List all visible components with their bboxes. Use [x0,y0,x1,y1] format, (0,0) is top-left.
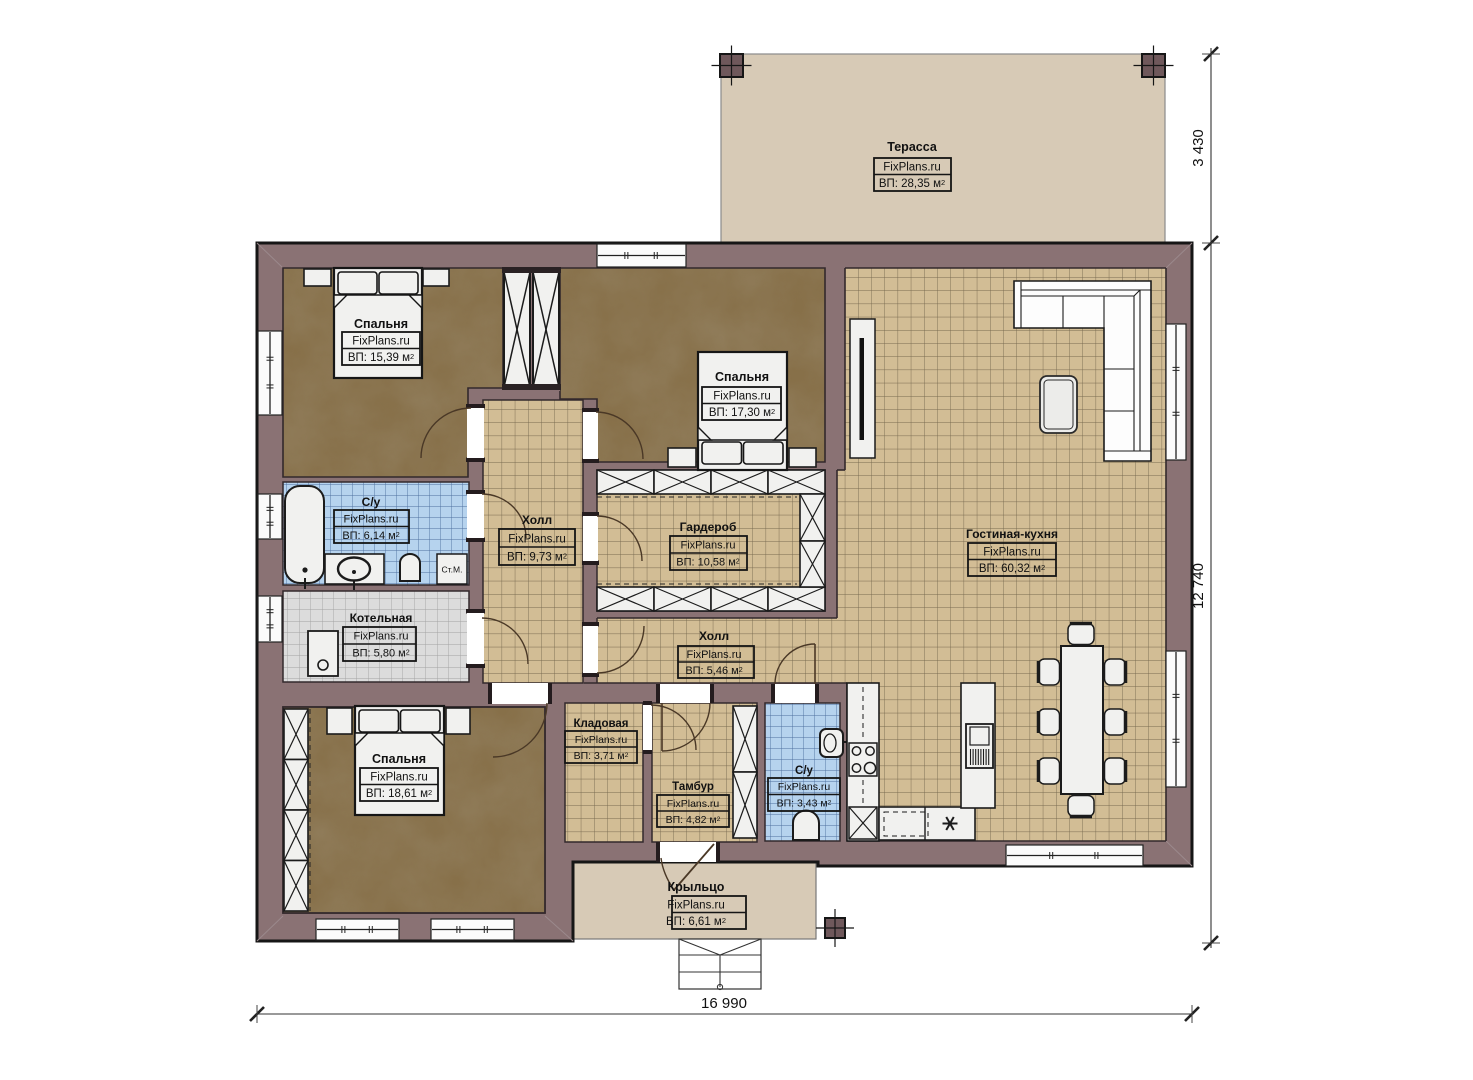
svg-text:ВП: 60,32 м2: ВП: 60,32 м2 [979,563,1045,575]
svg-text:3 430: 3 430 [1190,129,1207,167]
svg-text:ВП: 18,61 м2: ВП: 18,61 м2 [366,788,432,800]
svg-text:FixPlans.ru: FixPlans.ru [575,734,628,746]
svg-text:FixPlans.ru: FixPlans.ru [370,772,428,784]
svg-text:ВП: 6,14 м2: ВП: 6,14 м2 [342,530,399,542]
svg-text:FixPlans.ru: FixPlans.ru [667,900,725,912]
svg-text:Кладовая: Кладовая [573,718,628,730]
svg-text:FixPlans.ru: FixPlans.ru [883,162,941,174]
svg-text:Холл: Холл [522,513,552,527]
svg-text:Тамбур: Тамбур [672,781,714,793]
svg-text:Спальня: Спальня [715,370,769,384]
svg-text:FixPlans.ru: FixPlans.ru [352,336,410,348]
svg-text:16 990: 16 990 [701,995,747,1012]
svg-text:ВП: 5,46 м2: ВП: 5,46 м2 [685,665,742,677]
svg-text:С/у: С/у [362,495,381,509]
svg-text:FixPlans.ru: FixPlans.ru [508,533,566,545]
svg-text:ВП: 10,58 м2: ВП: 10,58 м2 [676,557,740,569]
svg-text:FixPlans.ru: FixPlans.ru [713,391,771,403]
svg-text:Гардероб: Гардероб [680,520,737,534]
svg-text:FixPlans.ru: FixPlans.ru [667,798,720,810]
svg-text:ВП: 28,35 м2: ВП: 28,35 м2 [879,178,945,190]
svg-text:ВП: 17,30 м2: ВП: 17,30 м2 [709,407,775,419]
svg-text:Терасса: Терасса [887,140,938,154]
svg-text:Спальня: Спальня [354,317,408,331]
svg-text:FixPlans.ru: FixPlans.ru [686,649,741,661]
svg-text:ВП: 5,80 м2: ВП: 5,80 м2 [352,648,409,660]
svg-text:Крыльцо: Крыльцо [668,880,725,894]
svg-text:FixPlans.ru: FixPlans.ru [778,781,831,793]
svg-text:Холл: Холл [699,629,729,643]
svg-text:ВП: 3,43 м2: ВП: 3,43 м2 [777,798,832,810]
svg-text:Спальня: Спальня [372,752,426,766]
svg-text:С/у: С/у [795,765,814,777]
svg-text:FixPlans.ru: FixPlans.ru [343,513,398,525]
svg-text:FixPlans.ru: FixPlans.ru [983,547,1041,559]
svg-text:FixPlans.ru: FixPlans.ru [353,631,408,643]
svg-text:Котельная: Котельная [350,611,413,625]
svg-text:Гостиная-кухня: Гостиная-кухня [966,527,1058,541]
svg-text:ВП: 15,39 м2: ВП: 15,39 м2 [348,352,414,364]
svg-text:Ст.М.: Ст.М. [442,565,463,575]
svg-text:ВП: 9,73 м2: ВП: 9,73 м2 [507,551,567,563]
svg-text:ВП: 3,71 м2: ВП: 3,71 м2 [574,750,629,762]
svg-text:12 740: 12 740 [1190,563,1207,609]
svg-text:FixPlans.ru: FixPlans.ru [680,540,735,552]
svg-text:ВП: 6,61 м2: ВП: 6,61 м2 [666,916,726,928]
svg-text:ВП: 4,82 м2: ВП: 4,82 м2 [666,814,721,826]
